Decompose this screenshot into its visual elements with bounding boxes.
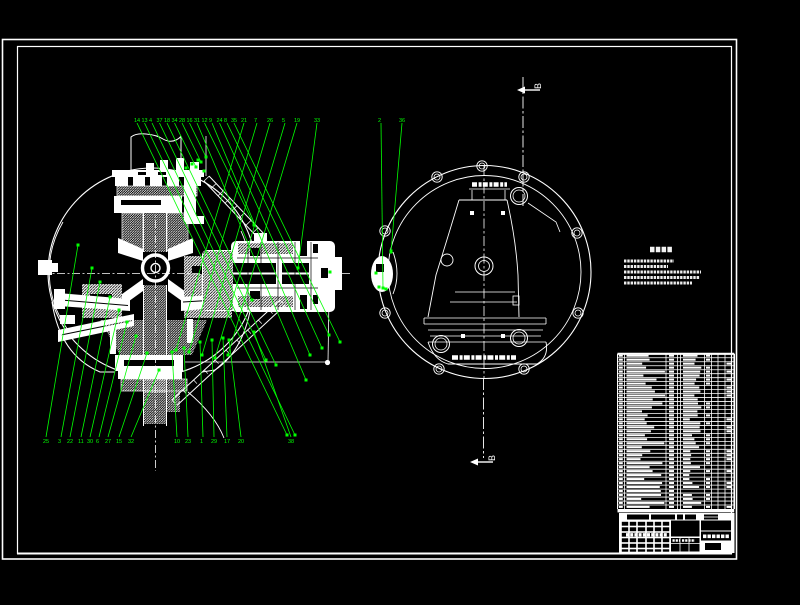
svg-text:38: 38 (288, 439, 294, 445)
svg-text:B: B (533, 83, 543, 89)
svg-text:25: 25 (43, 439, 49, 445)
svg-text:30: 30 (87, 439, 93, 445)
svg-text:6: 6 (96, 439, 99, 445)
svg-text:29: 29 (211, 439, 217, 445)
svg-text:15: 15 (116, 439, 122, 445)
svg-text:23: 23 (185, 439, 191, 445)
svg-text:9: 9 (209, 118, 212, 124)
svg-text:11: 11 (78, 439, 84, 445)
svg-text:4: 4 (149, 118, 152, 124)
svg-text:27: 27 (105, 439, 111, 445)
svg-text:1: 1 (200, 439, 203, 445)
svg-text:8: 8 (224, 118, 227, 124)
svg-text:17: 17 (224, 439, 230, 445)
svg-text:10: 10 (174, 439, 180, 445)
svg-text:20: 20 (238, 439, 244, 445)
svg-text:32: 32 (128, 439, 134, 445)
svg-text:B: B (487, 455, 497, 461)
svg-text:3: 3 (58, 439, 61, 445)
svg-text:22: 22 (67, 439, 73, 445)
